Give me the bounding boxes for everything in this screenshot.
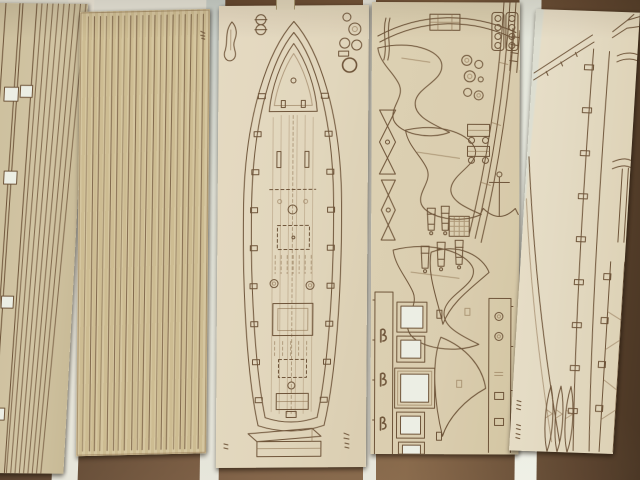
forecastle-arch (269, 43, 317, 111)
sheet-deck (216, 5, 369, 468)
keel-notched-piece (561, 49, 614, 451)
sheet-planking-strips-b (76, 9, 210, 456)
top-curved-beams (378, 17, 516, 60)
etched-marking (515, 401, 522, 439)
davit-parts (600, 14, 640, 243)
loose-bracket-part (224, 22, 236, 61)
pulley-ring-parts (462, 55, 484, 100)
second-notched-piece (593, 262, 625, 452)
transom-part (248, 428, 321, 457)
plank-lines (82, 14, 203, 451)
gun-carriage-parts (467, 124, 489, 163)
window-frames (394, 302, 442, 454)
anchor-part (480, 172, 518, 217)
stern-frames (430, 249, 490, 437)
etched-box-part (430, 14, 460, 30)
wide-strips (0, 3, 37, 473)
bulwark-notches (249, 93, 335, 403)
lattice-parts (379, 110, 395, 240)
sheet-parts (370, 2, 520, 455)
etched-marking (201, 31, 205, 39)
photo-ship-kit-sheets (0, 0, 640, 480)
stem-diagonal-part (534, 33, 595, 82)
side-strip-left (372, 292, 393, 454)
